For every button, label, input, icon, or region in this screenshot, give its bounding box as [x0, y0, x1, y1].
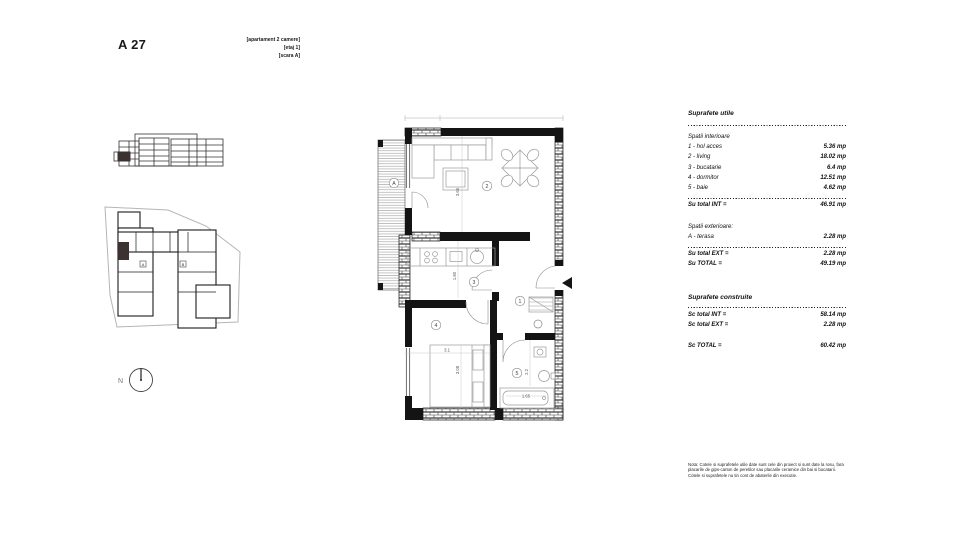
compass-pivot: [140, 379, 142, 381]
dim-tub: 1.65: [522, 394, 531, 399]
row-value: 60.42 mp: [820, 341, 846, 351]
interior-heading: Spatii interioare: [688, 134, 846, 140]
row-label: A - terasa: [688, 232, 714, 242]
row-label: 2 - living: [688, 152, 710, 162]
area-row: 4 - dormitor12.51 mp: [688, 173, 846, 183]
kitchen-furniture: [408, 248, 495, 266]
tub-drain: [543, 397, 546, 400]
sofa-seat: [434, 145, 486, 160]
divider: [688, 307, 846, 308]
area-row: 1 - hol acces5.36 mp: [688, 142, 846, 152]
row-label: Su total EXT =: [688, 249, 729, 259]
tag-floor: [etaj 1]: [190, 45, 300, 53]
useful-areas-title: Suprafete utile: [688, 110, 846, 117]
highlighted-unit-elevation: [118, 152, 130, 161]
row-label: Sc TOTAL =: [688, 341, 722, 351]
hall-furniture: [529, 297, 553, 328]
dim-living: 3.65: [455, 187, 460, 196]
bathroom-fixtures: [500, 347, 555, 408]
row-label: Sc total INT =: [688, 310, 726, 320]
site-plan: A B: [98, 193, 248, 343]
row-value: 58.14 mp: [820, 310, 846, 320]
boiler-symbol: [534, 320, 542, 328]
row-label: Sc total EXT =: [688, 320, 728, 330]
bedroom-furniture: [430, 345, 490, 407]
row-label: 4 - dormitor: [688, 173, 719, 183]
living-furniture: [412, 138, 541, 190]
built-total-row: Sc TOTAL =60.42 mp: [688, 341, 846, 351]
room-label-living: 2: [486, 184, 489, 190]
row-value: 2.28 mp: [824, 249, 846, 259]
room-label-kitchen: 3: [473, 280, 476, 286]
row-value: 4.62 mp: [824, 183, 846, 193]
apartment-tags: [apartament 2 camere] [etaj 1] [scara A]: [190, 37, 300, 60]
north-arrow: N: [112, 360, 158, 400]
cooktop-burner: [425, 252, 430, 257]
row-value: 2.28 mp: [824, 320, 846, 330]
total-int-row: Su total INT =46.91 mp: [688, 200, 846, 210]
dim-kitchen: 1.80: [452, 271, 457, 280]
room-label-terrace: A: [392, 181, 396, 187]
row-label: Su TOTAL =: [688, 259, 722, 269]
exterior-heading: Spatii exterioare:: [688, 224, 846, 230]
grand-total-row: Su TOTAL =49.19 mp: [688, 259, 846, 269]
dimension-line-top: [405, 115, 563, 121]
dim-bed-length: 3.08: [455, 365, 460, 374]
row-value: 12.51 mp: [820, 173, 846, 183]
entrance-label-a: A: [142, 262, 145, 267]
cooktop-burner: [433, 258, 438, 263]
bedroom-door: [466, 300, 488, 324]
basin-tap: [551, 373, 555, 379]
built-row: Sc total INT =58.14 mp: [688, 310, 846, 320]
room-label-bedroom: 4: [435, 323, 438, 329]
sofa-back: [412, 138, 492, 145]
divider: [688, 198, 846, 199]
kitchen-counter: [408, 248, 495, 266]
row-value: 18.02 mp: [820, 152, 846, 162]
area-row: A - terasa2.28 mp: [688, 232, 846, 242]
area-row: 3 - bucatarie6.4 mp: [688, 163, 846, 173]
row-value: 2.28 mp: [824, 232, 846, 242]
areas-panel: Suprafete utile Spatii interioare 1 - ho…: [688, 110, 846, 352]
entrance-door: [536, 266, 555, 288]
built-row: Sc total EXT =2.28 mp: [688, 320, 846, 330]
washbasin: [539, 371, 550, 382]
cooktop-burner: [433, 252, 438, 257]
north-label: N: [118, 378, 123, 385]
row-label: Su total INT =: [688, 200, 727, 210]
row-label: 1 - hol acces: [688, 142, 722, 152]
row-value: 49.19 mp: [820, 259, 846, 269]
cooktop-burner: [425, 258, 430, 263]
building-footprint: [118, 212, 230, 328]
built-areas-title: Suprafete construite: [688, 294, 846, 301]
bath-door: [503, 340, 525, 362]
tag-staircase: [scara A]: [190, 53, 300, 61]
row-label: 3 - bucatarie: [688, 163, 721, 173]
dim-bed-width: 3.1: [444, 348, 450, 353]
row-label: 5 - baie: [688, 183, 708, 193]
kitchen-sink: [450, 252, 462, 262]
building-elevation-diagram: [105, 130, 235, 175]
sofa-chaise: [412, 145, 434, 178]
highlighted-unit-site: [118, 242, 129, 260]
faucet: [475, 248, 478, 251]
row-value: 6.4 mp: [827, 163, 846, 173]
row-value: 5.36 mp: [824, 142, 846, 152]
dim-bath: 2.2: [524, 368, 529, 374]
row-value: 46.91 mp: [820, 200, 846, 210]
sofa-armrest: [486, 138, 492, 160]
entrance-label-b: B: [182, 262, 185, 267]
terrace-door: [412, 192, 428, 208]
tag-apartment-type: [apartament 2 camere]: [190, 37, 300, 45]
total-ext-row: Su total EXT =2.28 mp: [688, 249, 846, 259]
room-label-hall: 1: [519, 299, 522, 305]
bed-headboard: [484, 345, 490, 407]
divider: [688, 125, 846, 126]
pillow: [473, 382, 483, 402]
floor-plan: 3.65 1.80 3.1 3.08 2.2 1.65 A 2 3 1 4 5: [372, 100, 572, 430]
unit-code: A 27: [118, 37, 146, 52]
area-row: 5 - baie4.62 mp: [688, 183, 846, 193]
area-row: 2 - living18.02 mp: [688, 152, 846, 162]
room-label-bath: 5: [516, 371, 519, 377]
divider: [688, 247, 846, 248]
disclaimer-note: Nota: Cotele si suprafetele utile date s…: [688, 462, 848, 478]
round-sink: [471, 251, 484, 264]
